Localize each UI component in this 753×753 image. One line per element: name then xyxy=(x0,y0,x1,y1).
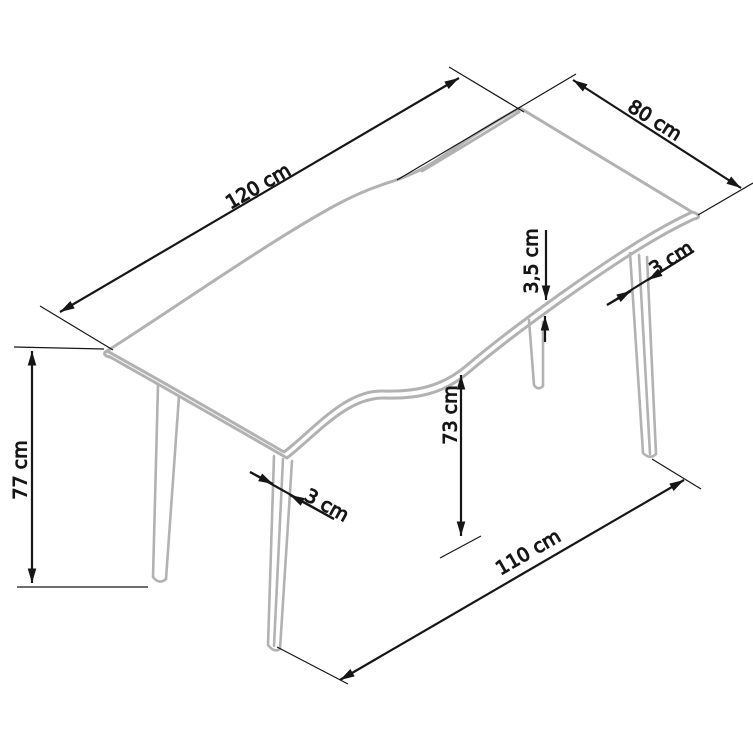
dimension-arrow-stub xyxy=(607,291,631,305)
dimension-label-tabletop-width: 80 cm xyxy=(624,96,686,146)
dimension-label-rear-leg-thickness: 3 cm xyxy=(646,237,698,281)
extension-line xyxy=(449,67,524,112)
dimension-arrow-stub xyxy=(250,472,273,484)
extension-line xyxy=(277,647,348,684)
table-dimension-diagram: 120 cm 80 cm 3,5 cm 3 cm 77 cm xyxy=(0,0,753,753)
table-drawing xyxy=(105,108,699,650)
extension-line xyxy=(14,347,104,349)
dimension-underside-height: 73 cm xyxy=(440,375,481,558)
extension-line xyxy=(440,536,481,558)
dimension-floor-span: 110 cm xyxy=(277,459,701,684)
dimension-label-front-leg-thickness: 3 cm xyxy=(301,485,353,527)
dimension-label-tabletop-length: 120 cm xyxy=(222,159,295,214)
dimension-total-height: 77 cm xyxy=(10,347,148,587)
dimension-tabletop-width: 80 cm xyxy=(397,74,753,215)
dimension-tabletop-length: 120 cm xyxy=(40,67,524,350)
dimension-line xyxy=(340,480,684,680)
dimension-label-total-height: 77 cm xyxy=(10,440,32,499)
extension-line xyxy=(698,183,753,215)
dimension-front-leg-thickness: 3 cm xyxy=(250,472,353,527)
table-leg-rear-left xyxy=(529,320,543,388)
dimension-rear-leg-thickness: 3 cm xyxy=(607,237,697,305)
tabletop-edge-thickness xyxy=(105,212,699,458)
diagram-canvas: 120 cm 80 cm 3,5 cm 3 cm 77 cm xyxy=(0,0,753,753)
dimension-annotations: 120 cm 80 cm 3,5 cm 3 cm 77 cm xyxy=(10,67,753,684)
dimension-label-tabletop-thickness: 3,5 cm xyxy=(521,228,543,293)
tabletop-surface xyxy=(107,108,692,452)
table-leg-left xyxy=(153,385,179,582)
dimension-label-underside-height: 73 cm xyxy=(440,385,462,444)
tabletop-wave-thickness xyxy=(422,112,519,171)
extension-line xyxy=(40,306,113,350)
